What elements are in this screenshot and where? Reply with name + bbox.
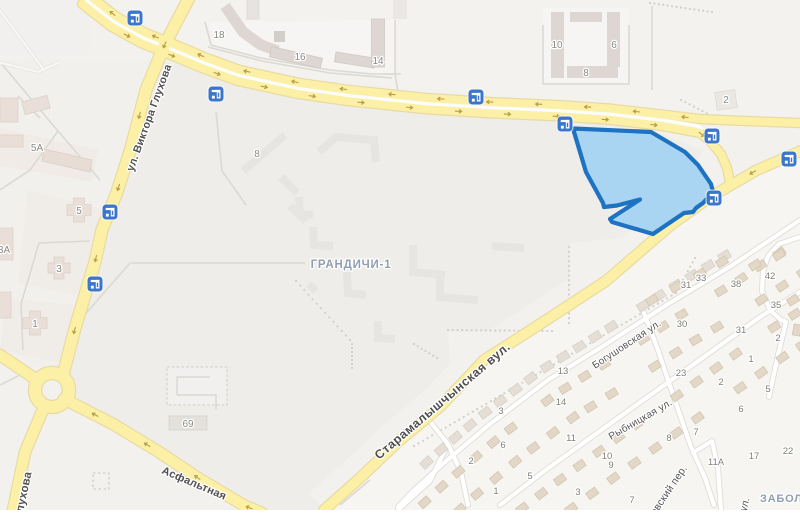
svg-text:10: 10 [551,40,563,51]
svg-text:33: 33 [696,273,707,284]
svg-text:17: 17 [749,451,760,462]
svg-text:11А: 11А [708,457,725,468]
svg-text:8: 8 [254,149,260,160]
svg-text:ГРАНДИЧИ-1: ГРАНДИЧИ-1 [311,259,392,271]
svg-text:3А: 3А [0,245,10,256]
svg-text:1: 1 [32,319,38,330]
svg-text:3: 3 [56,264,62,275]
svg-text:18: 18 [213,30,225,41]
svg-text:7: 7 [629,495,634,506]
svg-text:31: 31 [736,325,747,336]
svg-text:6: 6 [500,440,505,451]
svg-text:8: 8 [666,433,671,444]
svg-text:13: 13 [558,366,569,377]
svg-text:6: 6 [738,404,743,415]
svg-text:5: 5 [527,471,532,482]
svg-text:3: 3 [575,487,580,498]
svg-text:2: 2 [775,333,780,344]
svg-text:31: 31 [681,280,692,291]
svg-text:8: 8 [583,68,589,79]
svg-text:35: 35 [771,300,782,311]
svg-text:1: 1 [748,354,753,365]
svg-text:2: 2 [468,456,473,467]
svg-text:ЗАБОЛО: ЗАБОЛО [760,493,800,505]
svg-text:69: 69 [182,419,194,430]
svg-text:5А: 5А [31,143,44,154]
svg-text:5: 5 [76,206,82,217]
svg-text:11: 11 [566,433,576,444]
svg-text:7: 7 [693,427,698,438]
svg-text:22: 22 [783,446,794,457]
svg-text:42: 42 [765,271,776,282]
svg-text:14: 14 [372,56,384,67]
svg-text:30: 30 [677,319,688,330]
svg-text:23: 23 [676,368,687,379]
svg-text:2: 2 [723,95,729,106]
svg-text:2: 2 [718,377,723,388]
svg-text:9: 9 [608,460,613,471]
svg-text:5: 5 [765,384,770,395]
svg-text:3: 3 [498,406,503,417]
svg-text:16: 16 [294,52,306,63]
svg-text:6: 6 [611,40,617,51]
svg-text:14: 14 [556,397,567,408]
svg-text:1: 1 [493,486,498,497]
svg-text:38: 38 [731,279,742,290]
